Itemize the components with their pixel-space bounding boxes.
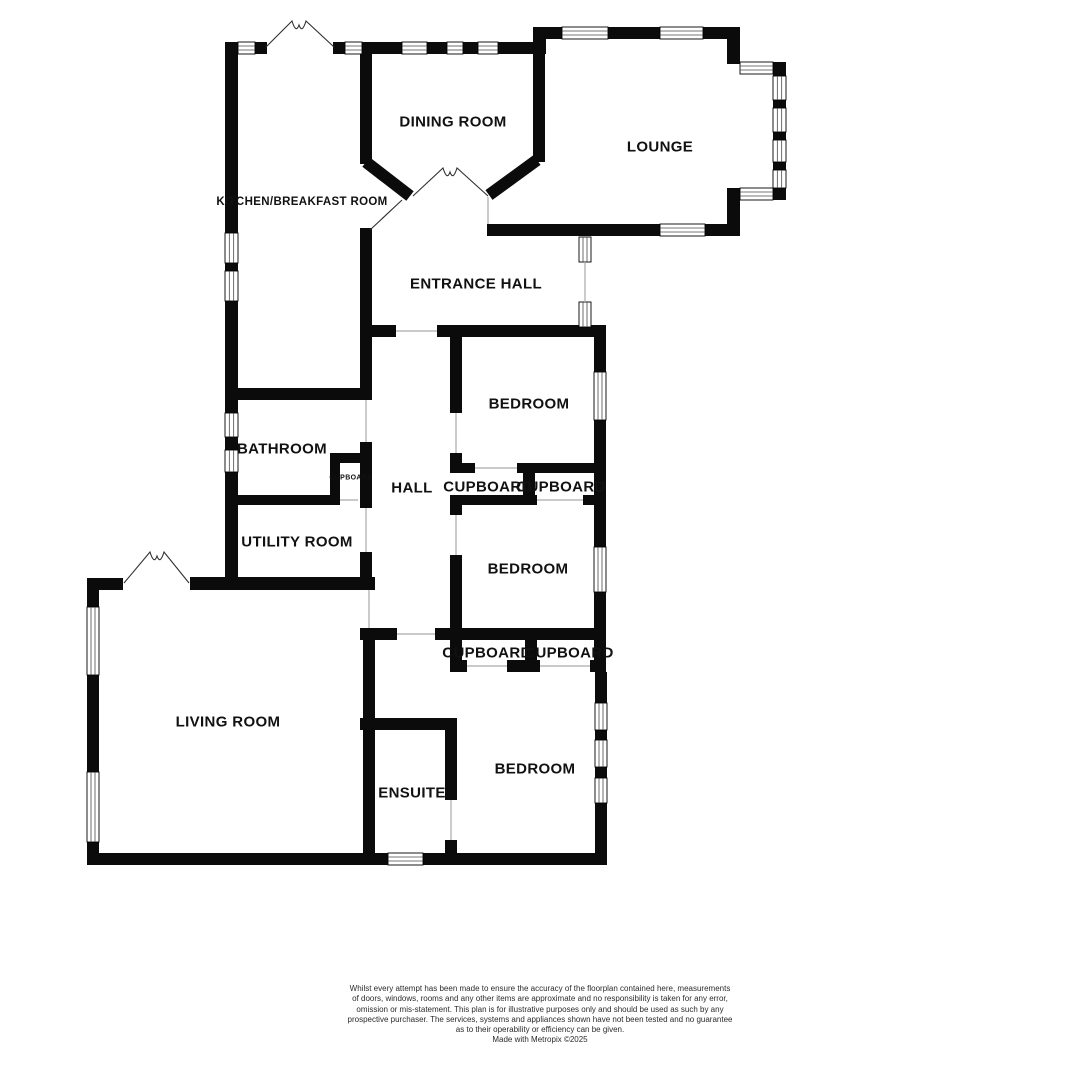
wall-segment — [190, 577, 375, 590]
wall-segment — [595, 730, 607, 740]
wall-segment — [87, 842, 99, 865]
window — [87, 772, 99, 842]
window — [660, 27, 703, 39]
wall-segment — [255, 42, 267, 54]
window — [740, 62, 773, 74]
window — [595, 778, 607, 803]
room-label-utility-room: UTILITY ROOM — [241, 533, 352, 550]
window — [660, 224, 705, 236]
room-label-cupboard-3: CUPBOARD — [442, 644, 531, 661]
window — [388, 853, 423, 865]
wall-segment — [773, 62, 786, 76]
wall-segment — [450, 495, 537, 505]
window — [225, 413, 238, 437]
wall-segment — [225, 301, 238, 393]
wall-segment — [703, 27, 740, 39]
wall-segment — [360, 54, 372, 164]
window — [740, 188, 773, 200]
wall-segment — [360, 552, 372, 590]
disclaimer-line: Whilst every attempt has been made to en… — [0, 984, 1080, 994]
wall-segment — [773, 162, 786, 170]
wall-segment — [450, 555, 462, 640]
disclaimer-line: prospective purchaser. The services, sys… — [0, 1015, 1080, 1025]
wall-segment — [87, 675, 99, 772]
window — [87, 607, 99, 675]
window — [579, 237, 591, 262]
window — [238, 42, 255, 54]
double-door-symbol — [266, 21, 334, 47]
room-label-cupboard-4: CUPBOARD — [524, 644, 613, 661]
floorplan-svg: DINING ROOMLOUNGEKITCHEN/BREAKFAST ROOME… — [0, 0, 1080, 1080]
wall-segment — [450, 660, 467, 672]
wall-segment — [533, 42, 545, 162]
wall-segment — [727, 200, 740, 226]
window — [595, 703, 607, 730]
disclaimer: Whilst every attempt has been made to en… — [0, 984, 1080, 1046]
wall-segment — [773, 100, 786, 108]
room-label-lounge: LOUNGE — [627, 138, 693, 155]
wall-segment — [595, 767, 607, 778]
window — [447, 42, 463, 54]
window — [773, 108, 786, 132]
room-label-bathroom: BATHROOM — [237, 440, 327, 457]
room-label-bathroom-cupboard: CUPBOARD — [329, 474, 372, 481]
wall-segment — [225, 505, 238, 590]
wall-segment — [450, 337, 462, 413]
wall-segment — [450, 505, 462, 515]
window — [594, 372, 606, 420]
wall-segment — [727, 39, 740, 64]
wall-segment — [225, 495, 340, 505]
double-door-symbol — [413, 168, 488, 196]
wall-segment — [360, 228, 372, 400]
window — [478, 42, 498, 54]
room-label-hall: HALL — [391, 479, 432, 496]
wall-diagonal — [366, 162, 410, 196]
wall-diagonal — [489, 160, 537, 195]
wall-segment — [330, 453, 370, 463]
floorplan-page: DINING ROOMLOUNGEKITCHEN/BREAKFAST ROOME… — [0, 0, 1080, 1080]
room-label-living-room: LIVING ROOM — [176, 713, 281, 730]
window — [595, 740, 607, 767]
window — [225, 271, 238, 301]
room-label-bedroom-2: BEDROOM — [488, 560, 569, 577]
wall-segment — [87, 578, 99, 607]
wall-segment — [423, 853, 607, 865]
disclaimer-line: of doors, windows, rooms and any other i… — [0, 994, 1080, 1004]
window — [773, 76, 786, 100]
wall-segment — [594, 337, 606, 372]
window — [402, 42, 427, 54]
wall-segment — [487, 224, 660, 236]
double-door-symbol — [124, 552, 189, 583]
wall-segment — [507, 660, 540, 672]
disclaimer-line: omission or mis-statement. This plan is … — [0, 1005, 1080, 1015]
wall-segment — [363, 628, 375, 853]
wall-segment — [360, 42, 402, 54]
window — [579, 302, 591, 327]
wall-segment — [773, 132, 786, 140]
window — [345, 42, 362, 54]
window — [773, 170, 786, 188]
wall-segment — [225, 397, 238, 413]
wall-segment — [450, 463, 475, 473]
window — [594, 547, 606, 592]
wall-segment — [595, 672, 607, 703]
room-label-dining-room: DINING ROOM — [399, 113, 506, 130]
wall-segment — [583, 495, 594, 505]
wall-segment — [517, 463, 594, 473]
window — [225, 233, 238, 263]
room-label-ensuite: ENSUITE — [378, 784, 445, 801]
wall-segment — [225, 472, 238, 505]
disclaimer-line: as to their operability or efficiency ca… — [0, 1025, 1080, 1035]
wall-segment — [498, 42, 534, 54]
room-label-kitchen-breakfast-room: KITCHEN/BREAKFAST ROOM — [216, 196, 387, 208]
wall-segment — [590, 660, 606, 672]
wall-segment — [450, 453, 462, 463]
wall-segment — [225, 263, 238, 271]
room-label-bedroom-3: BEDROOM — [495, 760, 576, 777]
room-label-bedroom-1: BEDROOM — [489, 395, 570, 412]
room-label-entrance-hall: ENTRANCE HALL — [410, 275, 542, 292]
metropix-credit: Made with Metropix ©2025 — [0, 1035, 1080, 1045]
wall-segment — [87, 853, 388, 865]
wall-segment — [360, 325, 396, 337]
room-label-cupboard-2: CUPBOARD — [516, 478, 605, 495]
wall-segment — [427, 42, 447, 54]
wall-segment — [225, 388, 371, 400]
wall-segment — [773, 188, 786, 200]
window — [773, 140, 786, 162]
wall-segment — [463, 42, 478, 54]
window — [562, 27, 608, 39]
wall-segment — [435, 628, 606, 640]
wall-segment — [445, 730, 457, 800]
wall-segment — [445, 840, 457, 853]
wall-segment — [546, 27, 562, 39]
wall-segment — [705, 224, 740, 236]
wall-segment — [608, 27, 660, 39]
wall-segment — [727, 188, 740, 200]
